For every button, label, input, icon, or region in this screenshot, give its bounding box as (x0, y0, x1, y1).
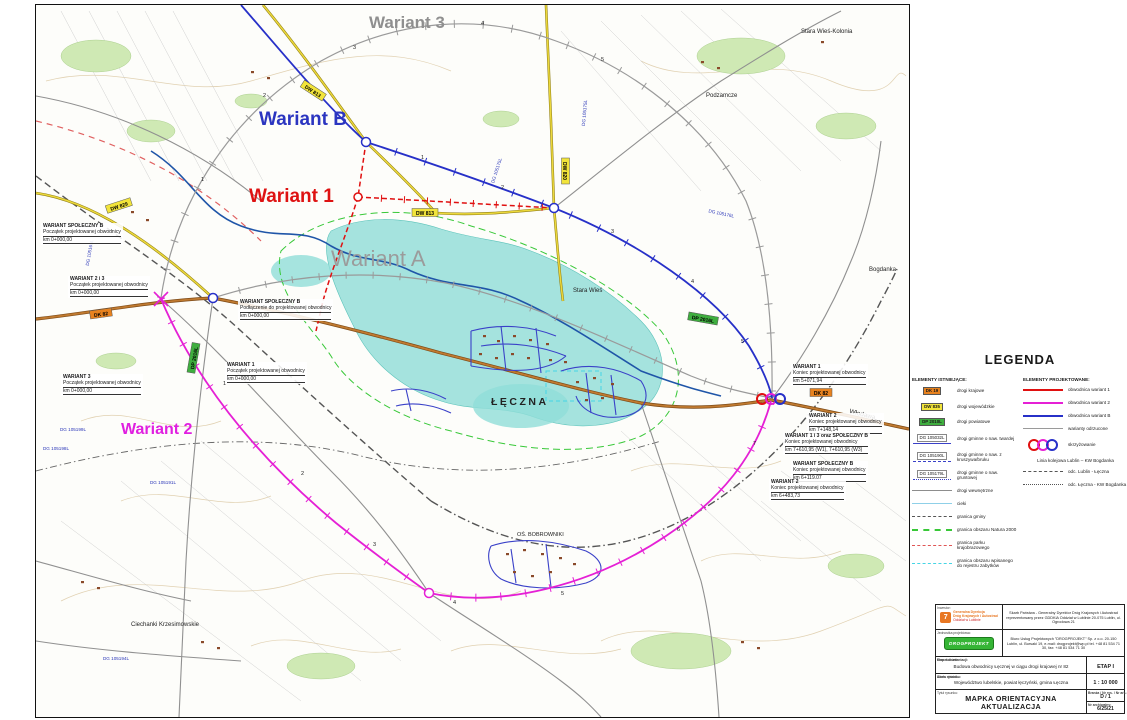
svg-text:OŚ. BOBROWNIKI: OŚ. BOBROWNIKI (517, 530, 564, 538)
drawing-meta: Branża / Nr rys. / Nr ark.: D / 1 Nr arc… (1087, 690, 1124, 713)
wariant-2-label: Wariant 2 (121, 421, 192, 439)
svg-text:DG 105175L: DG 105175L (490, 157, 503, 184)
svg-text:Stara Wieś-Kolonia: Stara Wieś-Kolonia (801, 29, 853, 35)
gmina-boundary (36, 441, 661, 471)
dw820-badge: DW 820 (561, 158, 570, 184)
callout-end-w1i3: WARIANT 1 i 3 oraz SPOŁECZNY B Koniec pr… (783, 433, 870, 455)
svg-text:ŁĘCZNA: ŁĘCZNA (491, 396, 549, 408)
legend-item-zabytki: granica obszaru wpisanego do rejestru za… (912, 558, 1017, 569)
designer-text: Biuro Usług Projektowych "DROGPROJEKT" S… (1003, 630, 1124, 656)
legend-item-wewnetrzne: drogi wewnętrzne (912, 488, 1017, 493)
callout-start-w1: WARIANT 1 Początek projektowanej obwodni… (225, 362, 307, 384)
legend-item-skrzyzowanie: skrzyżowanie (1023, 439, 1127, 451)
investor-text: Skarb Państwa - Generalny Dyrektor Dróg … (1003, 605, 1124, 629)
legend-item-dg-gruntowa: DG 105179L drogi gminne o naw. gruntowej (912, 470, 1017, 481)
legend-item-dg-kruszywo: DG 105190L drogi gminne o naw. z kruszyw… (912, 452, 1017, 463)
wariant-1-label: Wariant 1 (249, 186, 334, 208)
callout-start-w2i3: WARIANT 2 i 3 Początek projektowanej obw… (68, 276, 150, 298)
svg-text:5: 5 (601, 57, 604, 63)
legend-existing-header: ELEMENTY ISTNIEJĄCE: (912, 377, 1017, 382)
svg-text:5: 5 (741, 339, 744, 345)
legend-item-cieki: cieki (912, 501, 1017, 506)
dk82-badge-left: DK 82 (89, 308, 112, 319)
legend-item-granica-gminy: granica gminy (912, 514, 1017, 519)
legend-title: LEGENDA (912, 352, 1127, 367)
legend-panel: LEGENDA ELEMENTY ISTNIEJĄCE: DK 19 drogi… (912, 352, 1127, 576)
legend-existing-column: ELEMENTY ISTNIEJĄCE: DK 19 drogi krajowe… (912, 377, 1017, 576)
svg-text:7: 7 (753, 441, 756, 447)
legend-item-dg-twarda: DG 105032L drogi gminne o naw. twardej (912, 434, 1017, 445)
svg-text:2: 2 (301, 471, 304, 477)
legend-item-dk: DK 19 drogi krajowe (912, 387, 1017, 395)
dw-badge-swatch: DW 835 (921, 403, 943, 411)
base-map: 1 2 3 4 5 6 7 1 2 3 4 5 1 2 3 4 5 DW 829 (36, 5, 909, 717)
svg-text:DK 82: DK 82 (94, 311, 109, 319)
legend-item-wariant2: obwodnica wariant 2 (1023, 400, 1127, 405)
gddkia-logo-icon: 7 (940, 612, 951, 623)
svg-text:Bogdanka: Bogdanka (869, 267, 897, 273)
title-block: Inwestor: 7 Generalna Dyrekcja Dróg Kraj… (935, 604, 1125, 714)
svg-text:Stara Wieś: Stara Wieś (573, 288, 602, 294)
svg-text:1: 1 (421, 155, 424, 161)
branch-cell: Branża / Nr rys. / Nr ark.: D / 1 (1087, 690, 1124, 702)
svg-text:DW 820: DW 820 (561, 162, 567, 180)
legend-item-wariantB: obwodnica wariant B (1023, 413, 1127, 418)
junction-circles-icon (1028, 439, 1058, 451)
callout-start-spoleczny-b: WARIANT SPOŁECZNY B Początek projektowan… (41, 223, 123, 245)
svg-text:DG 105175L: DG 105175L (581, 99, 588, 126)
svg-text:Ciechanki Krzesimowskie: Ciechanki Krzesimowskie (131, 622, 200, 628)
svg-text:1: 1 (201, 177, 204, 183)
legend-item-natura2000: granica obszaru Natura 2000 (912, 527, 1017, 532)
svg-text:DW 829: DW 829 (110, 201, 129, 212)
svg-text:2: 2 (501, 185, 504, 191)
svg-text:3: 3 (373, 542, 376, 548)
dk-badge-swatch: DK 19 (923, 387, 941, 395)
callout-end-w2a: WARIANT 2 Koniec projektowanej obwodnicy… (807, 413, 884, 435)
address-row: Adres obiektu: Województwo lubelskie, po… (936, 674, 1124, 690)
legend-item-rail-lublin-leczna: odc. Lublin - Łęczna (1023, 469, 1127, 474)
dp-badge-swatch: DP 2010L (919, 418, 945, 426)
svg-text:Podzamcze: Podzamcze (706, 93, 738, 99)
callout-end-w1: WARIANT 1 Koniec projektowanej obwodnicy… (791, 364, 868, 386)
wariant-3-label: Wariant 3 (369, 13, 445, 33)
archive-cell: Nr archiwalny: 6/25/21 (1087, 702, 1124, 713)
legend-item-dw: DW 835 drogi wojewódzkie (912, 403, 1017, 411)
svg-text:4: 4 (453, 600, 456, 606)
svg-text:3: 3 (611, 229, 614, 235)
map-sheet: 1 2 3 4 5 6 7 1 2 3 4 5 1 2 3 4 5 DW 829 (35, 4, 910, 718)
svg-text:5: 5 (561, 591, 564, 597)
stage-cell: Etap dokumentacji: ETAP I (1087, 657, 1124, 673)
svg-text:DG 105191L: DG 105191L (150, 480, 176, 485)
callout-podlaczenie-spoleczny-b: WARIANT SPOŁECZNY B Podłączenie do proje… (238, 299, 333, 321)
legend-item-rail-leczna-bogdanka: odc. Łęczna - KW Bogdanka (1023, 482, 1127, 487)
svg-text:4: 4 (691, 279, 694, 285)
dw813-badge-2: DW 813 (412, 209, 438, 218)
drawing-title-row: Tytuł rysunku: MAPKA ORIENTACYJNA AKTUAL… (936, 690, 1124, 713)
investor-row: Inwestor: 7 Generalna Dyrekcja Dróg Kraj… (936, 605, 1124, 630)
designer-row: Jednostka projektowa: DROGPROJEKT Biuro … (936, 630, 1124, 657)
svg-text:2: 2 (263, 93, 266, 99)
legend-item-park: granica parku krajobrazowego (912, 540, 1017, 551)
svg-text:DG 105199L: DG 105199L (60, 427, 86, 432)
svg-text:3: 3 (353, 45, 356, 51)
legend-item-dp: DP 2010L drogi powiatowe (912, 418, 1017, 426)
dw829-badge: DW 829 (105, 198, 132, 214)
legend-projected-column: ELEMENTY PROJEKTOWANE: obwodnica wariant… (1023, 377, 1127, 576)
legend-item-wariant1: obwodnica wariant 1 (1023, 387, 1127, 392)
object-row: Nazwa obiektu: Budowa obwodnicy Łęcznej … (936, 657, 1124, 674)
wariant-a-label: Wariant A (331, 246, 426, 272)
wariant-b-label: Wariant B (259, 109, 347, 131)
callout-end-w2b: WARIANT 2 Koniec projektowanej obwodnicy… (769, 479, 846, 501)
callout-start-w3: WARIANT 3 Początek projektowanej obwodni… (61, 374, 143, 396)
svg-text:DG 105198L: DG 105198L (43, 446, 69, 451)
svg-text:DW 813: DW 813 (416, 211, 434, 217)
svg-text:DG 105194L: DG 105194L (103, 656, 129, 661)
svg-text:6: 6 (677, 527, 680, 533)
drawing-title: Tytuł rysunku: MAPKA ORIENTACYJNA AKTUAL… (936, 690, 1087, 713)
scale-cell: Skala rysunku: 1 : 10 000 (1087, 674, 1124, 689)
svg-text:DK 82: DK 82 (814, 391, 828, 397)
dk82-badge-right: DK 82 (810, 389, 832, 398)
legend-projected-header: ELEMENTY PROJEKTOWANE: (1023, 377, 1127, 382)
legend-railway-header: Linia kolejowa Lublin – KW Bogdanka (1023, 458, 1127, 463)
dp-badge-2: DP 2016L (688, 312, 719, 326)
svg-text:DG 105176L: DG 105176L (708, 208, 735, 218)
svg-text:4: 4 (481, 21, 484, 27)
legend-item-odrzucone: warianty odrzucone (1023, 426, 1127, 431)
